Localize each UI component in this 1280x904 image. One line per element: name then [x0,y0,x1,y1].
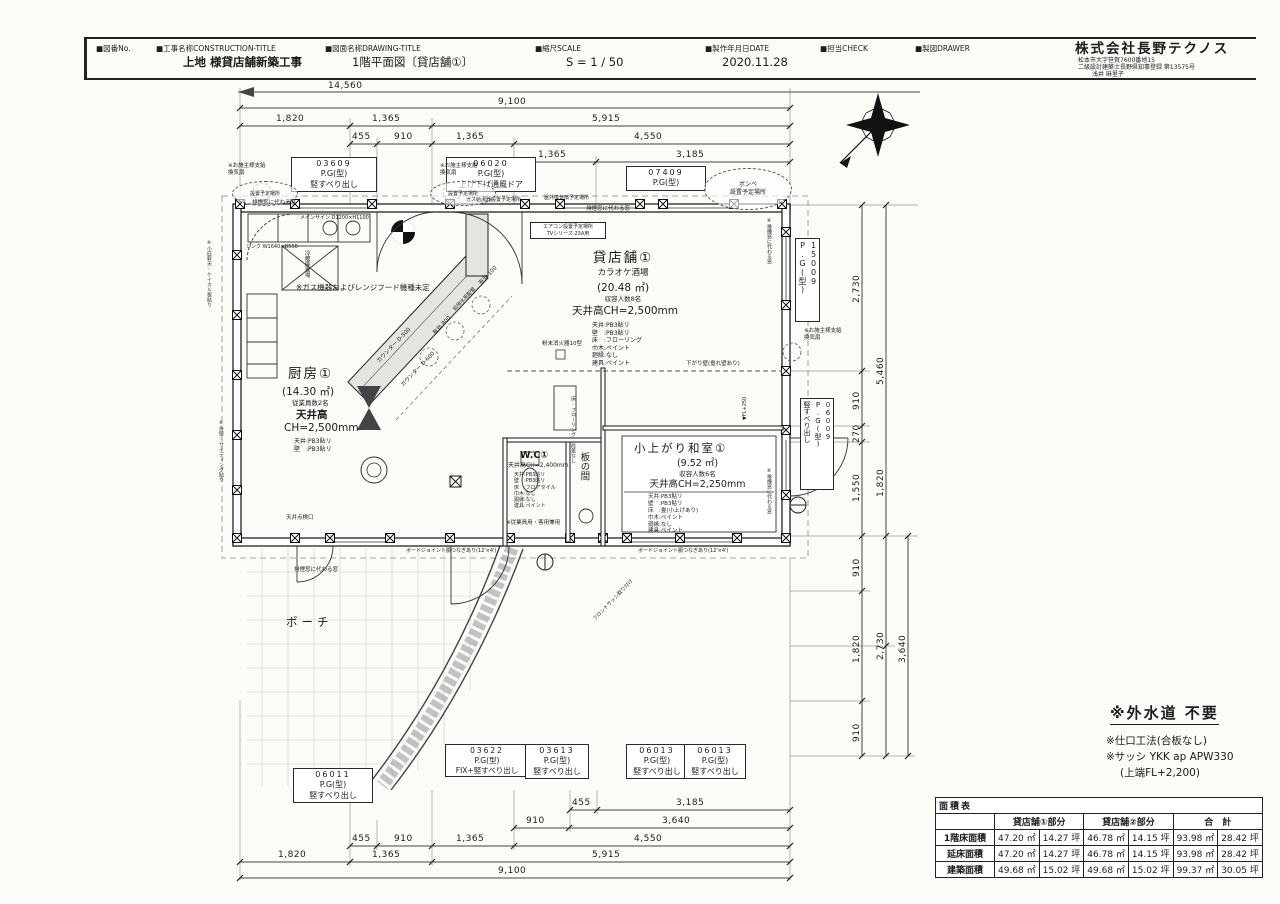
dim-9100-top: 9,100 [498,97,526,108]
dim-top: 5,915 [592,114,620,125]
window-label-03613: 03613 P.G(型) 竪すべり出し [525,744,589,779]
note-left-wall-2: ※外壁:サイディング貼り [218,420,224,570]
area-table: 面積表 貸店舗①部分 貸店舗②部分 合 計 1階床面積 47.20 ㎡14.27… [935,797,1263,878]
itanoma-note: 床:フローリング 段差なし [570,396,576,480]
note-out-fan: 屋外換気扇予定場所 [544,195,589,201]
room-cap-tenant: 収容人数8名 [558,296,688,304]
dim-bottom: 1,820 [278,850,306,861]
room-area-washitsu: (9.52 ㎡) [630,458,765,469]
window-label-06009: 06009 P.G(型) 竪すべり出し [800,398,834,490]
note-sink: シンク W1640×D550 [246,244,298,250]
dim-top: 455 [352,132,371,143]
area-table-header-2: 貸店舗②部分 [1084,814,1173,830]
window-label-03609: 03609 P.G(型) 竪すべり出し [291,157,377,192]
note-fire-extinguisher: 粉末消火器10型 [542,341,582,348]
kitchen-equipment [247,214,370,378]
dim-bottom: 3,185 [676,798,704,809]
dim-bottom: 1,365 [372,850,400,861]
wc-use-note: ※従業員用・客用兼用 [506,520,560,527]
window-label-15009: 15009 P.G(型) [795,238,820,322]
dim-right: 2,730 [852,275,863,303]
note-owner-fan-right: ※お施主様支給 換気扇 [804,328,842,341]
window-label-06013b: 06013 P.G(型) 竪すべり出し [684,744,746,779]
table-row: 延床面積 47.20 ㎡14.27 坪 46.78 ㎡14.15 坪 93.98… [936,846,1263,862]
note-gas-water: ガス給湯器設置予定場所 [466,197,521,203]
room-name-kitchen: 厨房① [288,366,333,382]
dim-top: 1,365 [372,114,400,125]
room-cap-kitchen: 従業員数2名 [292,400,329,408]
dim-top: 1,820 [276,114,304,125]
dim-top: 3,185 [676,150,704,161]
dim-right: 270 [852,424,863,443]
room-area-tenant: (20.48 ㎡) [558,282,688,295]
window-label-07409: 07409 P.G(型) [626,166,706,191]
room-name-washitsu: 小上がり和室① [634,442,727,456]
dim-right: 910 [852,558,863,577]
note-hanging-wall: 下がり壁(垂れ壁あり) [686,361,740,368]
note-board-joint-2: ボードジョイント胴つなぎあり(12'×4') [638,548,728,554]
area-table-header-1: 貸店舗①部分 [995,814,1084,830]
area-table-title: 面積表 [936,798,1263,814]
table-row: 1階床面積 47.20 ㎡14.27 坪 46.78 ㎡14.15 坪 93.9… [936,830,1263,846]
dim-bottom: 910 [526,816,545,827]
note-ceiling-hatch: 天井点検口 [286,515,314,522]
dim-total-width: 14,560 [328,81,363,92]
dim-bottom: 1,365 [456,834,484,845]
drawing-sheet: ■図番No. ■工事名称CONSTRUCTION-TITLE 上地 様貸店舗新築… [0,0,1280,904]
note-smoke-window-right-2: ※排煙窓に代わる窓 [766,468,772,568]
note-sash-spec: ※サッシ YKK ap APW330 [1106,751,1234,764]
dim-arrow [238,87,254,97]
area-table-header-total: 合 計 [1173,814,1262,830]
window-label-06011: 06011 P.G(型) 竪すべり出し [293,768,373,803]
dim-top: 1,365 [538,150,566,161]
room-name-itanoma: 板の間 [578,452,589,522]
dim-right: 1,820 [876,469,887,497]
note-smoke-window-1: 排煙窓に代わる窓 [252,200,296,207]
room-spec-tenant: 天井:PB3貼リ 壁 :PB3貼リ 床 :フローリング 巾木:ペイント 廻縁:な… [592,322,642,367]
room-ch2-kitchen: CH=2,500mm [284,422,359,435]
note-main-sign: メインサイン D1200×H1100 [300,215,369,221]
dim-right: 910 [852,723,863,742]
dim-top: 1,365 [456,132,484,143]
dim-right: 910 [852,391,863,410]
room-ch-wc: 天井高CH=2,400mm [508,462,569,469]
note-board-joint-1: ボードジョイント胴つなぎあり(12'×4') [406,548,496,554]
room-ch-tenant: 天井高CH=2,500mm [550,305,700,318]
note-owner-fan-2: ※お施主様支給 換気扇 [440,163,478,176]
dim-right: 3,640 [898,635,909,663]
dim-right: 1,820 [852,635,863,663]
dim-bottom: 5,915 [592,850,620,861]
room-name-wc: W.C① [520,450,548,461]
dim-bottom: 455 [352,834,371,845]
table-row: 建築面積 49.68 ㎡15.02 坪 49.68 ㎡15.02 坪 99.37… [936,862,1263,878]
note-aircon: エアコン設置予定場所 TVシリーズ 23A用 [530,222,606,239]
dim-bottom: 4,550 [634,834,662,845]
note-smoke-window-3: 排煙窓に代わる窓 [294,567,338,574]
note-no-outdoor-water: ※外水道 不要 [1110,704,1219,725]
dim-9100-bottom: 9,100 [498,866,526,877]
note-left-wall-1: ※小庇軒天:ケイカル板貼り [206,240,212,410]
room-spec-kitchen: 天井:PB3貼リ 壁 :PB3貼リ [294,438,332,453]
dim-bottom: 455 [572,798,591,809]
room-spec-wc: 天井:PB3貼リ 壁 :PB3貼リ 床 :フロアタイル 巾木:なし 廻縁:なし … [514,472,556,510]
room-ch1-kitchen: 天井高 [296,409,328,422]
north-arrow [840,93,910,168]
note-sash-height: (上端FL+2,200) [1120,767,1200,780]
room-ch-washitsu: 天井高CH=2,250mm [630,479,765,490]
room-area-kitchen: (14.30 ㎡) [282,386,334,399]
note-fl250: ▼FL+250 [742,397,748,420]
room-cap-washitsu: 収容人数6名 [630,471,765,479]
room-name-tenant: 貸店舗① [558,250,688,266]
note-gas-unknown: ※ガス機器およびレンジフード機種未定 [296,283,430,292]
room-name-porch: ポーチ [286,616,333,630]
note-smoke-window-right-1: ※排煙窓に代わる窓 [766,218,772,318]
dim-right: 2,730 [876,632,887,660]
dim-right: 1,550 [852,474,863,502]
dim-top: 910 [394,132,413,143]
note-bonbe: ボンベ 設置予定場所 [704,168,792,210]
dim-top: 4,550 [634,132,662,143]
window-label-06013a: 06013 P.G(型) 竪すべり出し [626,744,688,779]
dim-right: 5,460 [876,357,887,385]
note-smoke-window-2: 排煙窓に代わる窓 [586,206,630,213]
dim-bottom: 3,640 [662,816,690,827]
window-label-03622: 03622 P.G(型) FIX+竪すべり出し [445,744,529,777]
room-spec-washitsu: 天井:PB3貼リ 壁 :PB3貼リ 床 :畳(小上げあり) 巾木:ペイント 廻縁… [648,494,698,535]
note-owner-fan-1: ※お施主様支給 換気扇 [228,163,266,176]
note-fridge: 冷蔵庫置場 [303,250,310,290]
dim-bottom: 910 [394,834,413,845]
note-joint-method: ※仕口工法(合板なし) [1106,735,1207,748]
room-use-tenant: カラオケ酒場 [558,268,688,278]
